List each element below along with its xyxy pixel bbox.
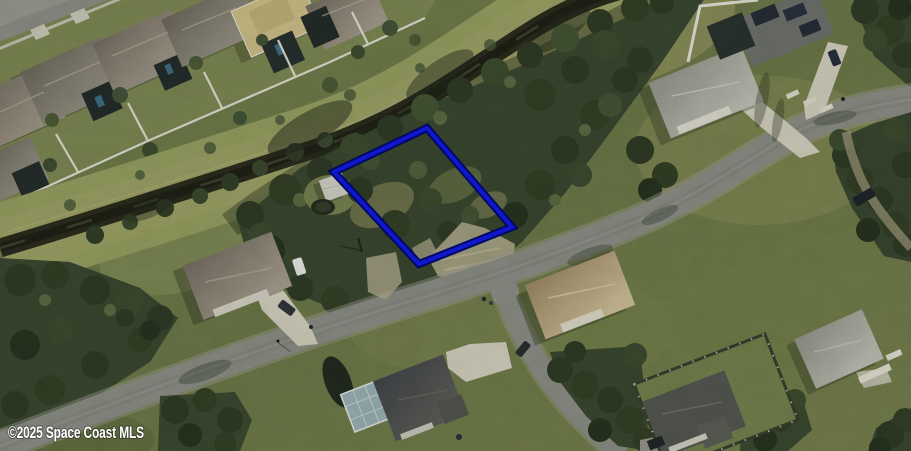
copyright-watermark: ©2025 Space Coast MLS <box>8 423 144 442</box>
aerial-photo-canvas: ©2025 Space Coast MLS <box>0 0 911 451</box>
photo-noise <box>0 0 911 451</box>
aerial-photo-map: ©2025 Space Coast MLS <box>0 0 911 451</box>
